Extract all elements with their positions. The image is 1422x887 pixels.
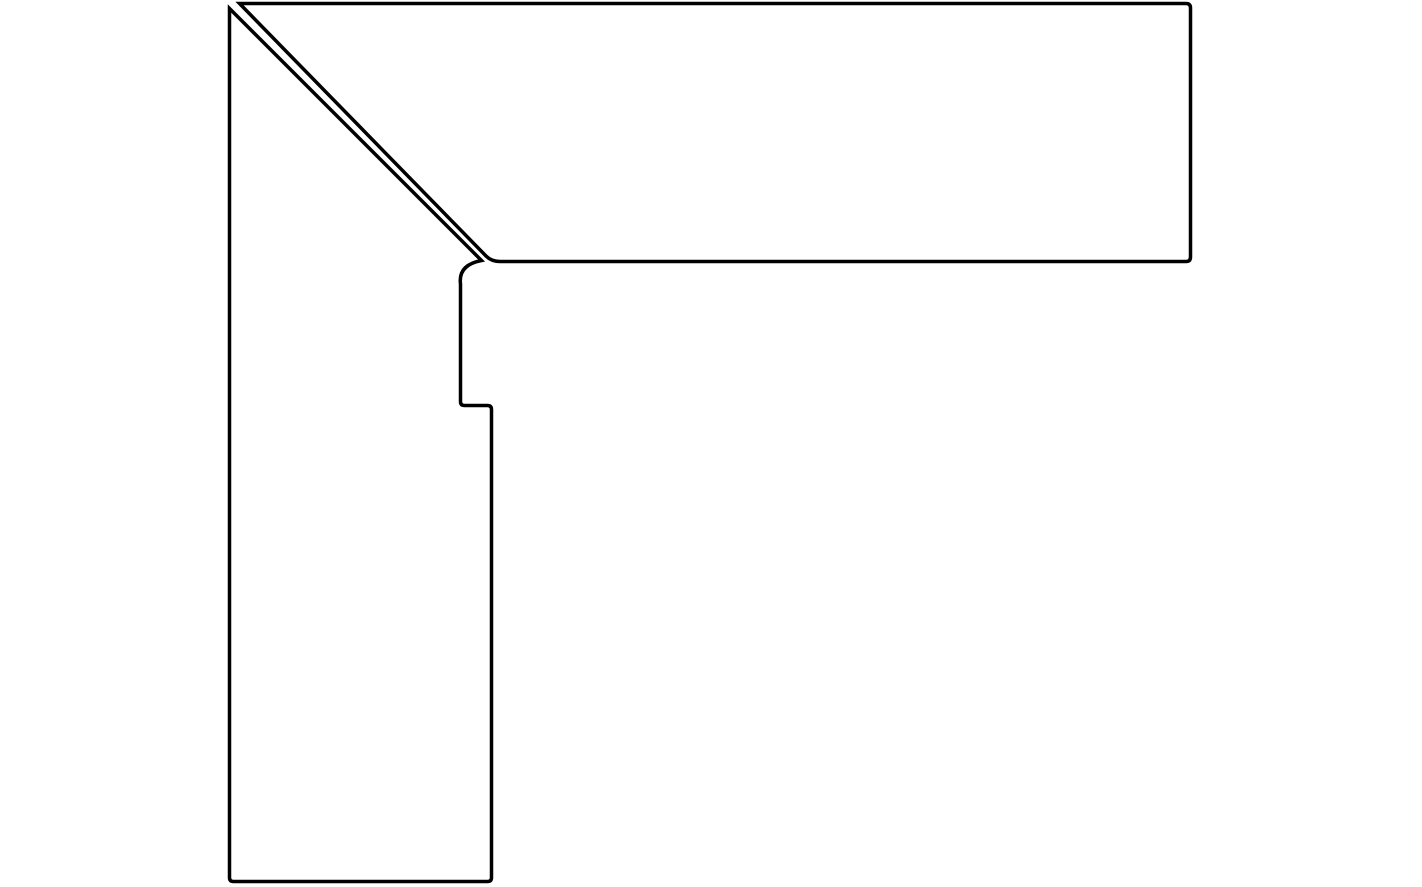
technical-drawing bbox=[0, 0, 1422, 887]
drawing-canvas bbox=[0, 0, 1422, 887]
